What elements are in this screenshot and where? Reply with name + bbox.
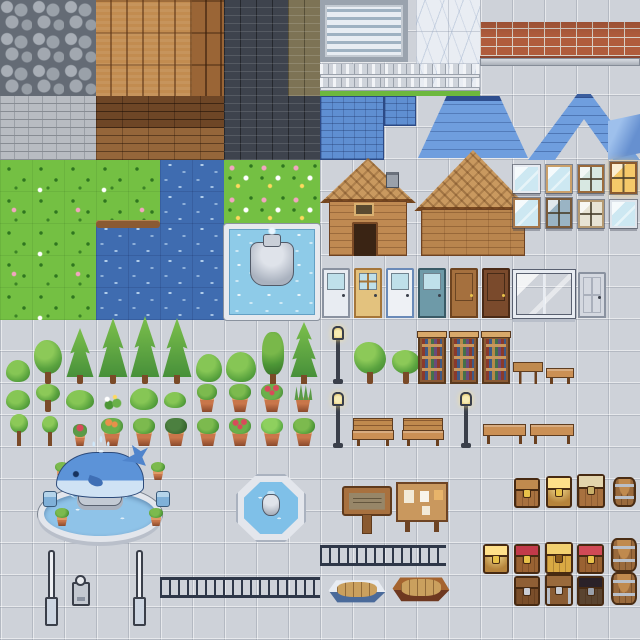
cabin-doorway[interactable]: [352, 222, 378, 256]
brick-wall-dark[interactable]: [224, 0, 288, 160]
tree-round-leafy-1[interactable]: [354, 342, 386, 384]
chest-red-open[interactable]: [577, 544, 604, 574]
tileset-canvas: [0, 0, 640, 640]
bench-1[interactable]: [352, 418, 394, 446]
grass-field-2[interactable]: [0, 224, 96, 320]
potted-plant-2[interactable]: [228, 384, 252, 412]
chest-black-open[interactable]: [577, 576, 604, 606]
potted-plant-1[interactable]: [196, 384, 218, 412]
table[interactable]: [513, 362, 543, 384]
blue-roof-flat[interactable]: [320, 96, 384, 160]
window-blinds[interactable]: [320, 0, 408, 62]
wood-plank-floor-dark[interactable]: [192, 0, 224, 96]
shore-edge[interactable]: [96, 220, 160, 228]
brick-wall-olive[interactable]: [288, 0, 320, 96]
tree-round-leafy-2[interactable]: [392, 350, 420, 384]
window-white-2[interactable]: [610, 200, 637, 228]
door-tan[interactable]: [354, 268, 382, 318]
chest-gold[interactable]: [545, 542, 573, 574]
whale-statue[interactable]: [56, 452, 144, 498]
stone-ledge[interactable]: [480, 58, 640, 66]
bench-backless-2[interactable]: [530, 424, 574, 444]
bookshelf-1[interactable]: [418, 334, 446, 384]
cabin-window[interactable]: [354, 203, 374, 216]
potted-plant-red[interactable]: [260, 384, 284, 412]
grass-field[interactable]: [0, 160, 160, 224]
door-gray-panel[interactable]: [578, 272, 606, 318]
octagon-fountain[interactable]: [236, 474, 306, 542]
bush-dense[interactable]: [130, 388, 158, 410]
storefront-window[interactable]: [513, 270, 575, 318]
tree-conifer-tall-2[interactable]: [130, 316, 160, 384]
bookshelf-2[interactable]: [450, 334, 478, 384]
parking-meter[interactable]: [72, 582, 90, 606]
blue-roof-tile[interactable]: [384, 96, 416, 126]
river-water[interactable]: [160, 160, 224, 224]
barrel-1[interactable]: [611, 538, 637, 572]
stone-brick-wall[interactable]: [0, 96, 96, 160]
lake-water[interactable]: [96, 224, 224, 320]
potted-plant-6[interactable]: [196, 418, 220, 446]
lamp-post-2[interactable]: [331, 392, 345, 448]
fountain-seat-1[interactable]: [43, 491, 57, 507]
chest-wood[interactable]: [514, 478, 540, 508]
chest-open-tan[interactable]: [577, 474, 605, 508]
barrel-small[interactable]: [613, 477, 636, 507]
flower-sprigs[interactable]: [100, 392, 124, 410]
boat-white[interactable]: [328, 577, 386, 604]
bench-backless-1[interactable]: [483, 424, 526, 444]
potted-flower-small[interactable]: [72, 424, 88, 446]
post-2[interactable]: [132, 550, 145, 626]
bookshelf-3[interactable]: [482, 334, 510, 384]
lamp-post-3[interactable]: [459, 392, 473, 448]
pool-fountain[interactable]: [250, 242, 294, 286]
fountain-pot-4[interactable]: [148, 508, 164, 526]
door-dark-brown[interactable]: [482, 268, 510, 318]
fountain-pot-2[interactable]: [150, 462, 166, 480]
potted-plant-red-2[interactable]: [228, 418, 252, 446]
cabin-chimney[interactable]: [386, 172, 399, 188]
door-white-glass[interactable]: [322, 268, 350, 318]
wood-plank-floor-light[interactable]: [96, 0, 192, 96]
window-dark-4pane[interactable]: [546, 198, 572, 228]
potted-plant-spiky[interactable]: [292, 384, 314, 412]
post-1[interactable]: [44, 550, 57, 626]
whale-spout[interactable]: [88, 436, 114, 454]
chest-dark-wood[interactable]: [514, 576, 540, 606]
wood-planks-horizontal-dark[interactable]: [96, 96, 224, 128]
cobblestone-floor[interactable]: [0, 0, 96, 96]
potted-plant-4[interactable]: [132, 418, 156, 446]
tree-lollipop-1[interactable]: [8, 414, 30, 446]
potted-plant-7[interactable]: [260, 418, 284, 446]
wooden-sign[interactable]: [342, 486, 392, 534]
barrel-2[interactable]: [611, 572, 637, 605]
chest-gold-open[interactable]: [483, 544, 509, 574]
window-lit[interactable]: [610, 162, 637, 194]
tree-lollipop-2[interactable]: [40, 416, 60, 446]
tree-pine-double[interactable]: [290, 322, 318, 384]
chest-gold-front[interactable]: [546, 476, 572, 508]
fountain-seat-2[interactable]: [156, 491, 170, 507]
blue-glass-corner[interactable]: [608, 114, 640, 160]
bush-wide[interactable]: [226, 352, 256, 382]
chest-metal[interactable]: [545, 574, 573, 606]
tree-conifer-tall-3[interactable]: [162, 318, 192, 384]
bush-medium[interactable]: [196, 354, 222, 382]
window-white[interactable]: [513, 165, 540, 193]
railing-long-2[interactable]: [160, 577, 320, 598]
bush-dome-1[interactable]: [6, 390, 30, 410]
window-brown-4pane[interactable]: [578, 165, 604, 193]
potted-plant-5[interactable]: [164, 418, 188, 446]
picket-fence[interactable]: [320, 64, 480, 96]
potted-plant-8[interactable]: [292, 418, 316, 446]
bench-low[interactable]: [546, 368, 574, 384]
chest-red-lid[interactable]: [514, 544, 540, 574]
wood-planks-horizontal[interactable]: [96, 128, 224, 160]
grass-flower-field[interactable]: [224, 160, 320, 224]
blue-roof-hip[interactable]: [418, 96, 528, 158]
window-wood-2pane[interactable]: [513, 198, 540, 228]
tree-conifer-tall-1[interactable]: [98, 318, 128, 384]
brick-wall-dark-2[interactable]: [288, 96, 320, 160]
window-glass[interactable]: [546, 165, 572, 193]
lamp-post-1[interactable]: [331, 326, 345, 384]
door-white-blue[interactable]: [386, 268, 414, 318]
red-brick-ledge[interactable]: [480, 22, 640, 58]
tree-conifer[interactable]: [66, 328, 94, 384]
bush-dome-2[interactable]: [164, 392, 186, 408]
bench-2[interactable]: [402, 418, 444, 446]
window-cream[interactable]: [578, 200, 604, 228]
door-brown[interactable]: [450, 268, 478, 318]
bush-small[interactable]: [6, 360, 30, 382]
tree-round-medium[interactable]: [34, 340, 62, 384]
door-teal-glass[interactable]: [418, 268, 446, 318]
notice-board[interactable]: [396, 482, 448, 532]
boat-brown[interactable]: [392, 574, 450, 603]
tree-round-small[interactable]: [36, 384, 60, 412]
tree-slim[interactable]: [260, 332, 286, 384]
railing-long-1[interactable]: [320, 545, 446, 566]
fountain-pot-3[interactable]: [54, 508, 70, 526]
bush-wide-2[interactable]: [66, 390, 94, 410]
